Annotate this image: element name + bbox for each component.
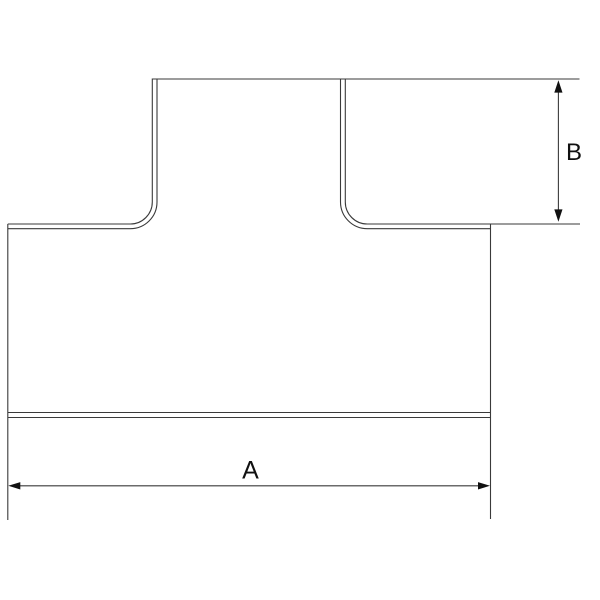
svg-text:A: A bbox=[242, 456, 259, 484]
svg-text:B: B bbox=[566, 139, 582, 166]
